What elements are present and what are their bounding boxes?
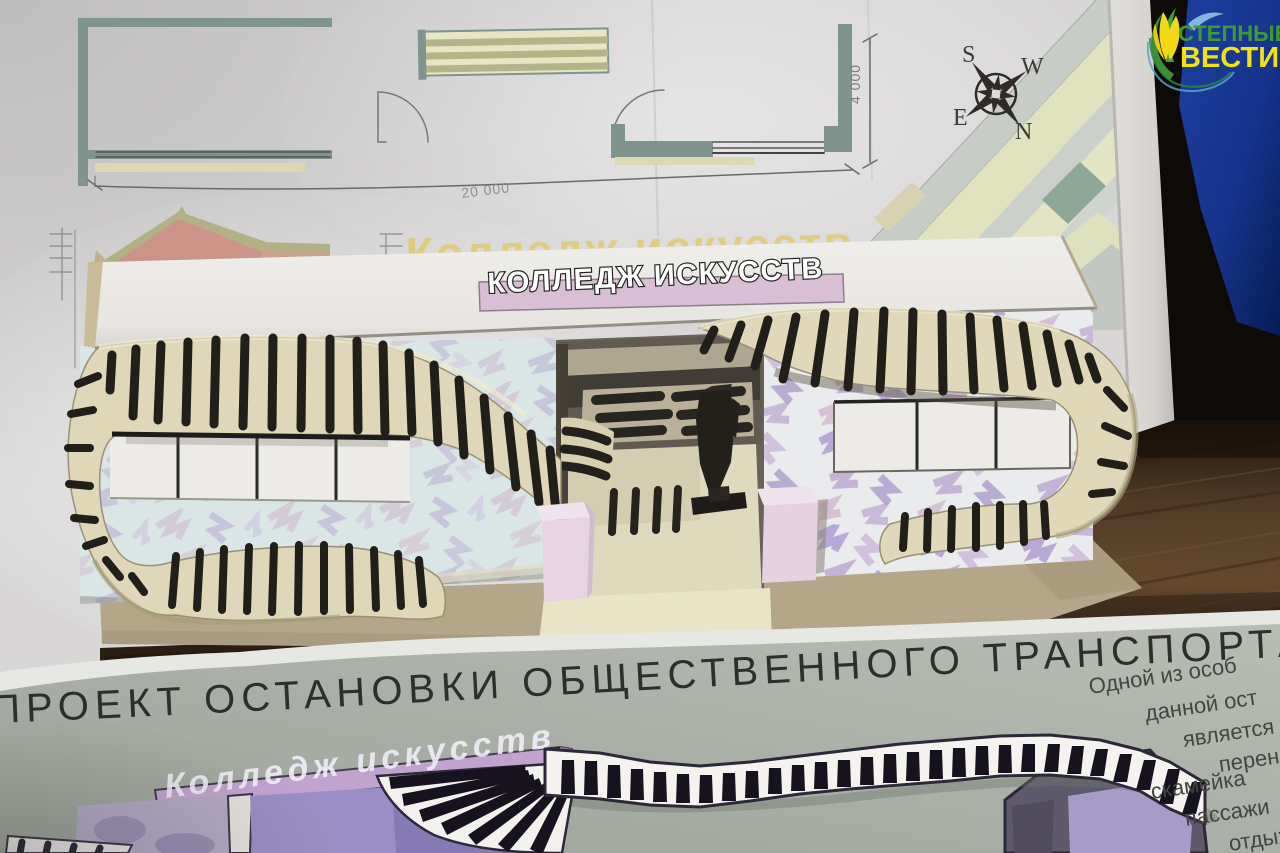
- svg-text:4 000: 4 000: [847, 64, 863, 104]
- svg-text:N: N: [1015, 119, 1032, 145]
- svg-text:E: E: [953, 105, 968, 131]
- svg-text:W: W: [1021, 54, 1044, 80]
- svg-text:ВЕСТИ: ВЕСТИ: [1180, 42, 1279, 74]
- svg-text:S: S: [962, 42, 975, 68]
